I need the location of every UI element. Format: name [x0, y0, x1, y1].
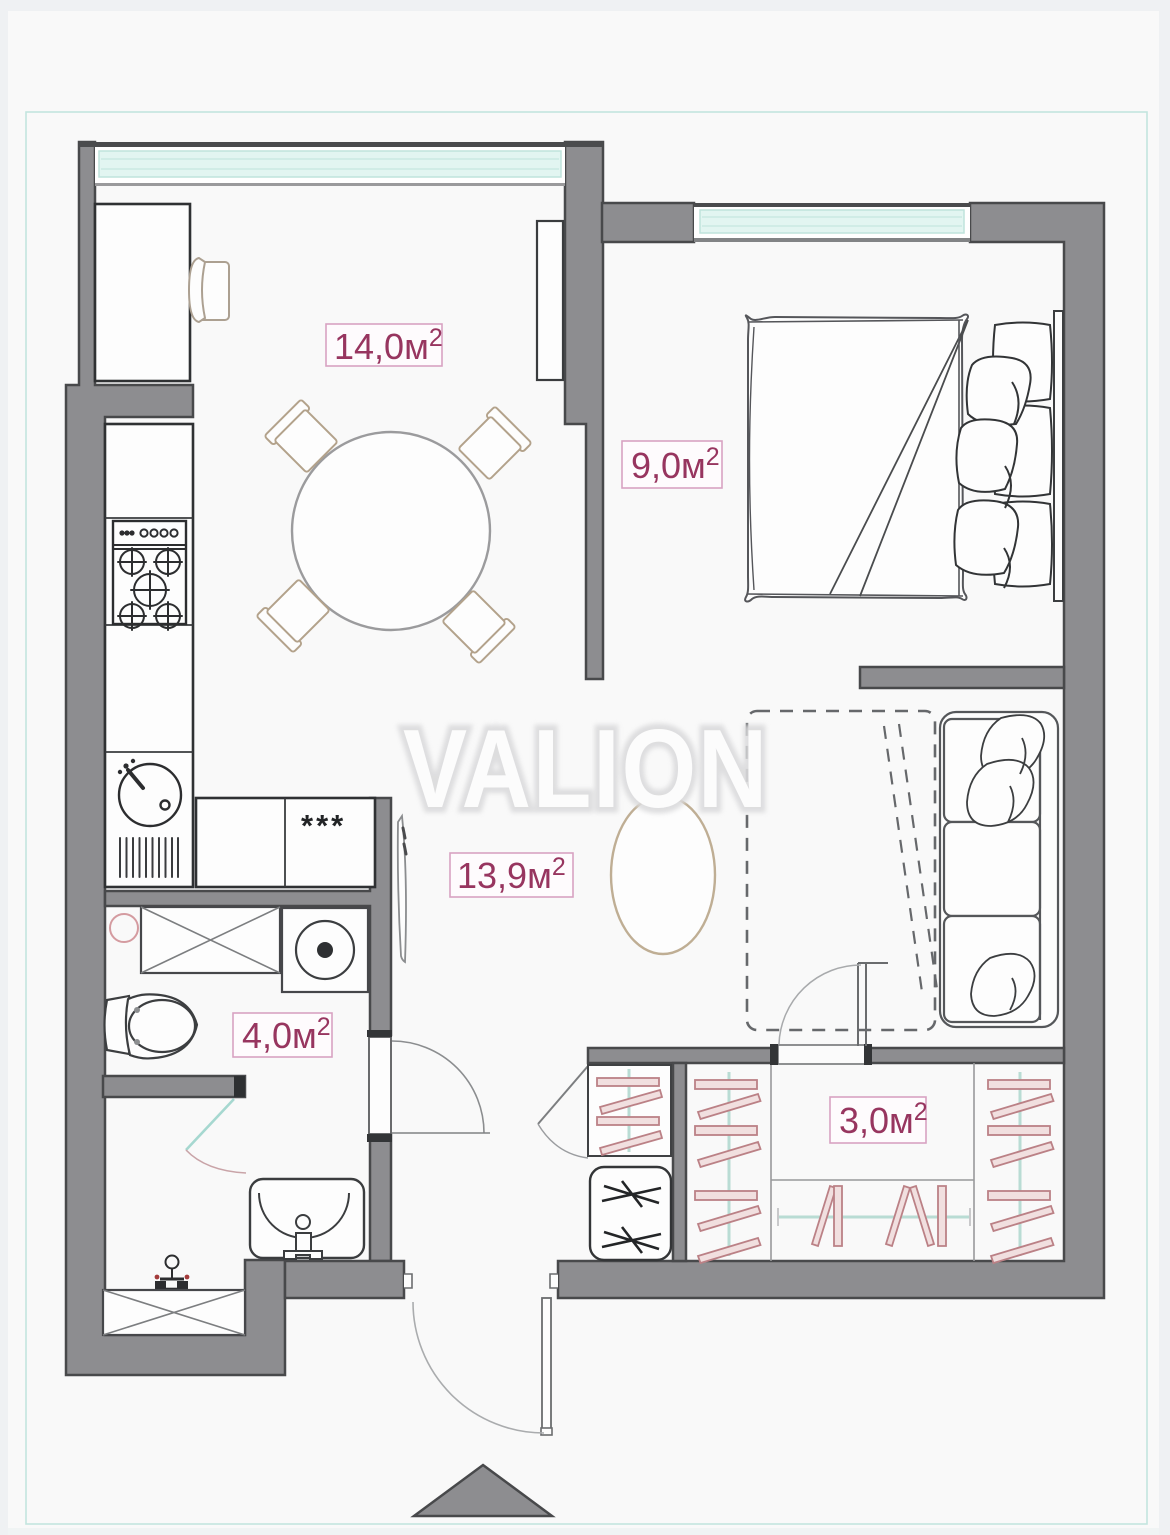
svg-text:***: *** — [301, 808, 346, 843]
svg-text:13,9м2: 13,9м2 — [457, 853, 566, 896]
svg-text:14,0м2: 14,0м2 — [334, 324, 443, 367]
svg-text:VALION: VALION — [403, 707, 769, 831]
